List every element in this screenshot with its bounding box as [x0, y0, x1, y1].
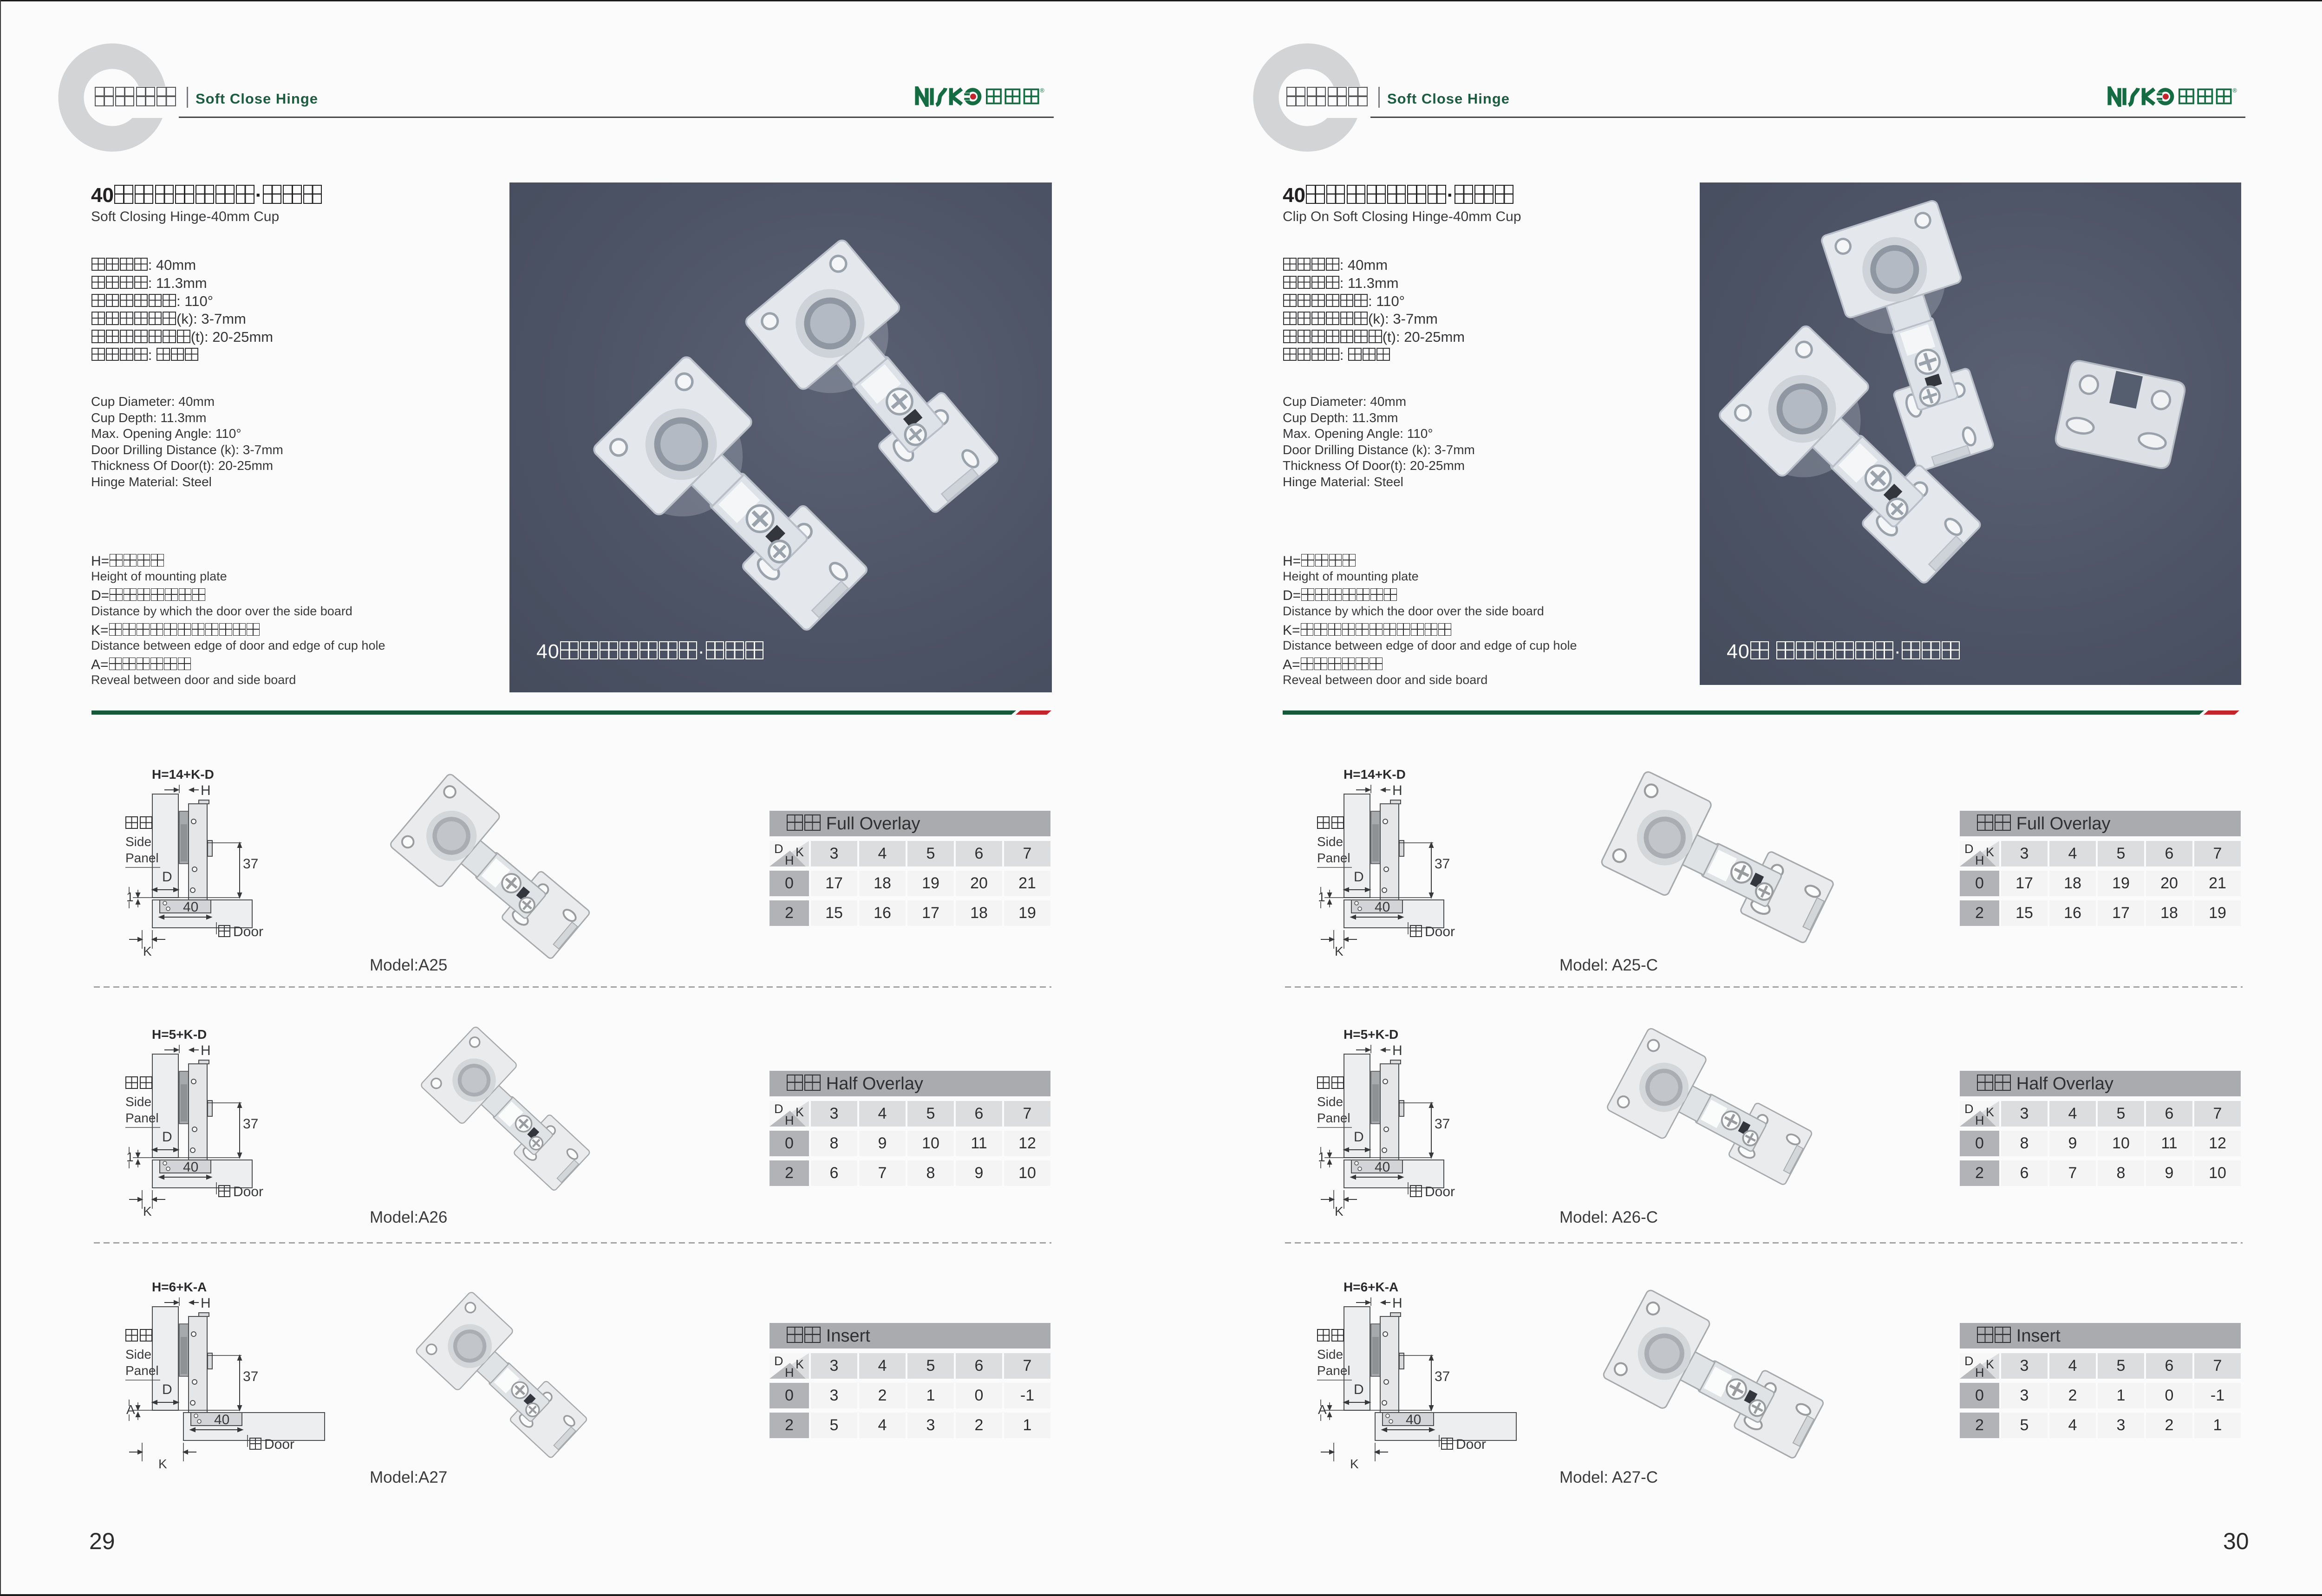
svg-text:K: K [158, 1457, 167, 1471]
svg-text:H: H [1392, 783, 1402, 798]
svg-text:D: D [1354, 1129, 1364, 1145]
svg-text:K: K [796, 1105, 804, 1119]
svg-text:H: H [1975, 1366, 1984, 1379]
svg-text:H: H [201, 1296, 211, 1311]
svg-text:40: 40 [183, 899, 198, 915]
svg-text:Panel: Panel [125, 1363, 159, 1378]
svg-text:Door: Door [1456, 1437, 1486, 1452]
svg-text:Panel: Panel [125, 1111, 159, 1125]
svg-text:H: H [1975, 1114, 1984, 1127]
svg-text:Door: Door [233, 924, 263, 939]
svg-text:H: H [201, 783, 211, 798]
svg-text:Panel: Panel [1317, 1363, 1350, 1378]
svg-text:Door: Door [264, 1437, 294, 1452]
svg-text:D: D [774, 1354, 783, 1368]
svg-text:Door: Door [233, 1184, 263, 1199]
svg-text:Panel: Panel [1317, 1111, 1350, 1125]
svg-text:K: K [796, 845, 804, 859]
svg-text:H: H [785, 1366, 794, 1379]
svg-text:D: D [1354, 1382, 1364, 1397]
svg-text:40: 40 [1375, 1160, 1390, 1175]
svg-text:®: ® [1040, 87, 1044, 94]
svg-text:40: 40 [183, 1160, 198, 1175]
svg-text:D: D [1964, 1102, 1974, 1116]
svg-text:37: 37 [243, 1116, 258, 1132]
svg-text:K: K [1335, 944, 1344, 958]
svg-text:Side: Side [125, 1347, 151, 1361]
svg-text:D: D [1964, 1354, 1974, 1368]
svg-text:H: H [1975, 853, 1984, 866]
svg-text:Side: Side [1317, 1347, 1343, 1361]
svg-text:Door: Door [1425, 1184, 1455, 1199]
svg-text:37: 37 [1435, 856, 1450, 872]
svg-text:Side: Side [1317, 834, 1343, 849]
svg-text:Side: Side [125, 1094, 151, 1109]
svg-text:Side: Side [125, 834, 151, 849]
svg-text:H: H [785, 853, 794, 866]
svg-text:A: A [126, 1402, 135, 1417]
svg-text:D: D [774, 842, 783, 856]
svg-text:Panel: Panel [1317, 851, 1350, 865]
svg-text:®: ® [2232, 87, 2237, 94]
svg-text:1: 1 [126, 1150, 134, 1164]
svg-text:1: 1 [126, 890, 134, 904]
svg-text:H: H [1392, 1043, 1402, 1058]
svg-text:K: K [1986, 1105, 1994, 1119]
svg-text:K: K [1986, 845, 1994, 859]
svg-text:D: D [162, 1129, 172, 1145]
svg-text:K: K [1335, 1204, 1344, 1218]
svg-text:D: D [774, 1102, 783, 1116]
svg-text:D: D [162, 1382, 172, 1397]
svg-text:Panel: Panel [125, 851, 159, 865]
svg-text:K: K [1986, 1357, 1994, 1371]
svg-text:40: 40 [1406, 1412, 1421, 1427]
svg-text:H: H [1392, 1296, 1402, 1311]
svg-text:H: H [785, 1114, 794, 1127]
svg-text:K: K [1350, 1457, 1359, 1471]
svg-text:1: 1 [1318, 890, 1325, 904]
svg-text:37: 37 [1435, 1116, 1450, 1132]
svg-text:37: 37 [1435, 1369, 1450, 1384]
svg-text:D: D [1964, 842, 1974, 856]
svg-text:H: H [201, 1043, 211, 1058]
svg-text:Side: Side [1317, 1094, 1343, 1109]
svg-text:40: 40 [214, 1412, 229, 1427]
svg-text:K: K [796, 1357, 804, 1371]
svg-text:Door: Door [1425, 924, 1455, 939]
svg-text:37: 37 [243, 1369, 258, 1384]
svg-text:40: 40 [1375, 899, 1390, 915]
svg-text:K: K [143, 944, 152, 958]
svg-text:D: D [1354, 869, 1364, 885]
svg-text:K: K [143, 1204, 152, 1218]
svg-text:37: 37 [243, 856, 258, 872]
svg-text:1: 1 [1318, 1150, 1325, 1164]
svg-text:A: A [1318, 1402, 1327, 1417]
svg-text:D: D [162, 869, 172, 885]
